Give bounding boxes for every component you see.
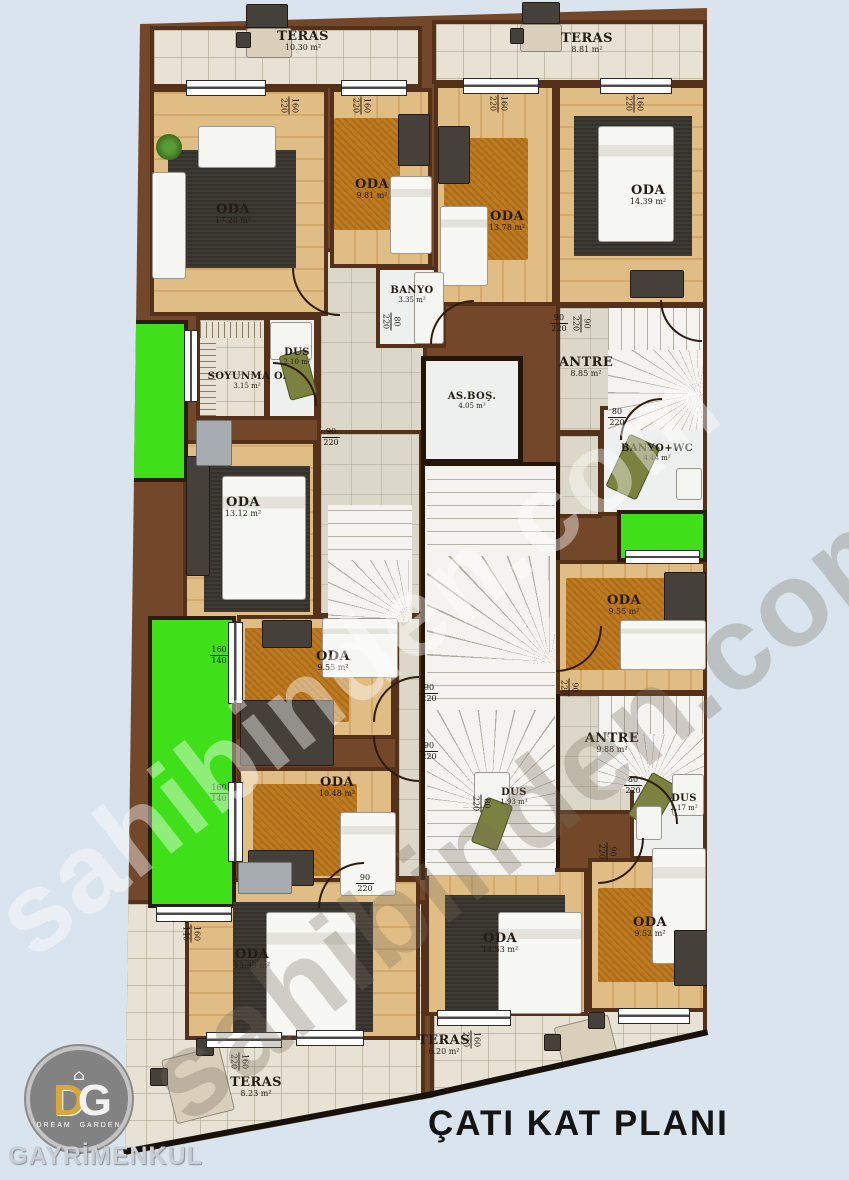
agency-logo: ⌂ DG DREAM GARDEN [26, 1046, 132, 1152]
landing-right [556, 432, 602, 518]
chair-teras-620-b [588, 1012, 605, 1029]
label-banyowc: BANYO+WC4.44 m² [621, 444, 693, 462]
desk-oda-981 [398, 114, 430, 166]
window-teras-tl-2 [341, 80, 407, 96]
window-teras-tl-1 [186, 80, 266, 96]
label-dus-217: DUS2.17 m² [670, 794, 697, 812]
dim-door-9: 80220 [624, 776, 642, 795]
logo-initials: DG [53, 1081, 105, 1121]
building-footprint: TERAS10.30 m² TERAS8.81 m² ODA17.28 m² O… [0, 0, 849, 1180]
label-banyo: BANYO3.35 m² [390, 286, 433, 304]
window-oda-1333-left [156, 906, 232, 922]
label-oda-1333: ODA13.33 m² [234, 948, 270, 971]
window-oda-1333-bottom-1 [206, 1032, 282, 1048]
label-antre-885: ANTRE8.85 m² [559, 356, 613, 379]
logo-subtitle: DREAM GARDEN [36, 1122, 121, 1129]
stairs-main-flight-2 [427, 664, 555, 712]
dim-door-6: 90220 [420, 684, 438, 703]
dim-window-2: 160220 [352, 97, 371, 115]
stairs-main-fan-1 [427, 556, 555, 666]
label-antre-988: ANTRE9.88 m² [585, 732, 639, 755]
chair-teras-tl [236, 32, 251, 48]
label-oda-952: ODA9.52 m² [633, 916, 667, 939]
dim-door-3: 90220 [572, 315, 591, 333]
label-oda-981: ODA9.81 m² [355, 178, 389, 201]
window-oda-1048 [228, 782, 243, 862]
dim-door-4: 80220 [608, 408, 626, 427]
window-oda-1333-bottom-2 [296, 1030, 364, 1046]
dim-door-5: 80220 [382, 313, 401, 331]
dim-window-8: 160220 [462, 1031, 481, 1049]
stairs-left-fan [328, 560, 412, 622]
agency-name: GAYRİMENKUL [8, 1142, 203, 1171]
window-teras-tr-2 [600, 78, 672, 94]
dim-door-8: 90220 [356, 874, 374, 893]
closet-rail-top [200, 322, 264, 338]
dim-window-3: 160220 [489, 95, 508, 113]
desk-oda-1333 [238, 862, 292, 894]
dim-door-12: 90220 [560, 679, 579, 697]
label-oda-living: ODA17.28 m² [215, 203, 251, 226]
balcony-upper-left [128, 320, 188, 482]
dining-table-teras-tr [520, 24, 562, 52]
label-teras-tr: TERAS8.81 m² [561, 32, 613, 55]
sofa-horizontal [198, 126, 276, 168]
window-oda-1453-bottom [437, 1010, 511, 1026]
desk-oda-952 [674, 930, 708, 986]
wardrobe-oda-1312 [186, 456, 210, 576]
stairs-left-flight [328, 505, 412, 563]
bed-oda-981 [390, 176, 432, 254]
label-oda-1048: ODA10.48 m² [319, 776, 355, 799]
window-balcony-right [625, 550, 700, 564]
plan-title: ÇATI KAT PLANI [428, 1104, 729, 1144]
dim-door-11: 90220 [598, 843, 617, 861]
window-teras-tr-1 [463, 78, 539, 94]
dim-window-9: 160140 [182, 925, 201, 943]
dim-door-7: 90220 [420, 742, 438, 761]
dim-door-10: 80220 [472, 795, 491, 813]
label-oda-1312: ODA13.12 m² [225, 496, 261, 519]
sofa-vertical [152, 172, 186, 279]
window-balcony-ul [184, 330, 198, 402]
label-dus-210: DUS2.10 m² [283, 348, 310, 366]
window-oda-955l [228, 622, 243, 704]
label-soyunma: SOYUNMA O.3.15 m² [208, 372, 287, 390]
chair-teras-823-a [150, 1068, 168, 1086]
plant [156, 134, 182, 160]
wardrobe-band [240, 700, 334, 766]
label-teras-823: TERAS8.23 m² [230, 1076, 282, 1099]
desk-oda-1378 [438, 126, 470, 184]
label-oda-955l: ODA9.55 m² [316, 650, 350, 673]
dim-window-4: 160220 [625, 95, 644, 113]
label-dus-193: DUS1.93 m² [500, 788, 527, 806]
dim-window-1: 160220 [280, 97, 299, 115]
dim-door-2: 90220 [550, 314, 568, 333]
bed-oda-1453 [498, 912, 582, 1014]
label-oda-1378: ODA13.78 m² [489, 210, 525, 233]
floor-plan-canvas: TERAS10.30 m² TERAS8.81 m² ODA17.28 m² O… [0, 0, 849, 1180]
label-oda-1453: ODA14.53 m² [482, 932, 518, 955]
dim-door-1: 90220 [322, 428, 340, 447]
label-teras-tl: TERAS10.30 m² [277, 30, 329, 53]
dim-window-7: 160220 [230, 1053, 249, 1071]
label-asbos: AS.BOŞ.4.05 m² [448, 392, 497, 410]
toilet-banyowc [676, 468, 702, 500]
chair-teras-620-a [544, 1034, 561, 1051]
bed-oda-955r [620, 620, 706, 670]
teras-table-top-right [522, 2, 560, 24]
bed-oda-1378 [440, 206, 488, 286]
teras-table-top-left [246, 4, 288, 28]
stairs-main-flight-1 [427, 468, 555, 558]
chair-teras-tr [510, 28, 524, 44]
dim-window-6: 160140 [210, 784, 228, 803]
label-oda-1439: ODA14.39 m² [630, 184, 666, 207]
label-oda-955r: ODA9.55 m² [607, 594, 641, 617]
dim-window-5: 160140 [210, 646, 228, 665]
desk-oda-955l [262, 620, 312, 648]
bed-oda-1333 [266, 912, 356, 1036]
desk-oda-1439 [630, 270, 684, 298]
window-oda-952-bottom [618, 1008, 690, 1024]
armchair-hall [196, 420, 232, 466]
